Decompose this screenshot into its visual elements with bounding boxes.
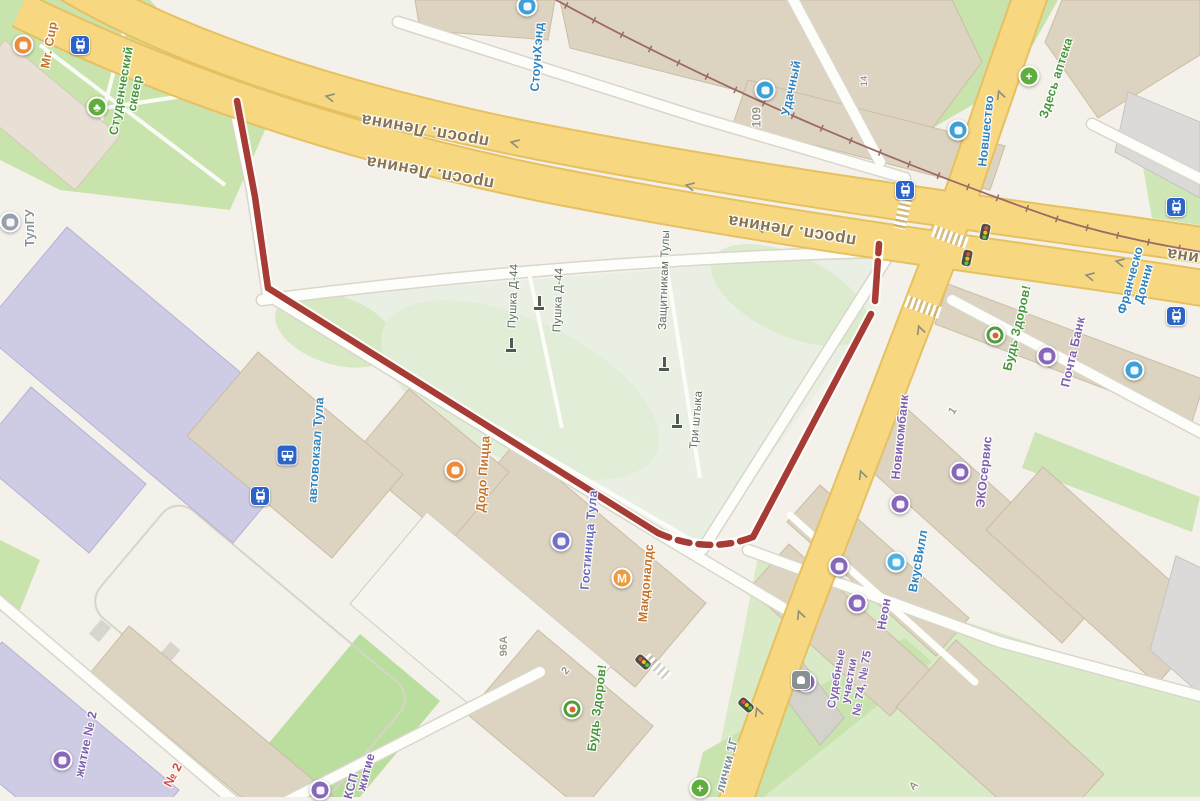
novshestvo-icon[interactable] xyxy=(948,120,969,141)
bud-zdorov-icon[interactable] xyxy=(985,325,1006,346)
transit-stop-icon[interactable] xyxy=(250,486,270,506)
dormitory-icon[interactable] xyxy=(52,750,73,771)
map-viewport[interactable]: ♣ + М + просп. Ленина просп. Ленина прос… xyxy=(0,0,1200,797)
university-icon[interactable] xyxy=(0,212,21,233)
mcdonalds-icon[interactable]: М xyxy=(612,568,633,589)
house-number-109: 109 xyxy=(750,107,763,128)
pharmacy-plus-icon[interactable]: + xyxy=(690,778,711,799)
mr-cup-icon[interactable] xyxy=(13,35,34,56)
bell-icon[interactable] xyxy=(791,670,811,690)
dodo-pizza-icon[interactable] xyxy=(445,460,466,481)
transit-stop-icon[interactable] xyxy=(1166,306,1186,326)
hotel-icon[interactable] xyxy=(551,531,572,552)
ksp-icon[interactable] xyxy=(310,780,331,801)
pharmacy-icon[interactable]: + xyxy=(1019,66,1040,87)
monument-icon[interactable] xyxy=(506,338,516,352)
park-tree-icon[interactable]: ♣ xyxy=(87,97,108,118)
transit-stop-icon[interactable] xyxy=(895,180,915,200)
shop-icon[interactable] xyxy=(829,556,850,577)
label-pushka-d44-2[interactable]: Пушка Д-44 xyxy=(551,268,566,333)
monument-icon[interactable] xyxy=(672,414,682,428)
pochta-bank-icon[interactable] xyxy=(1037,346,1058,367)
monument-icon[interactable] xyxy=(534,296,544,310)
transit-stop-icon[interactable] xyxy=(1166,197,1186,217)
label-tulgu[interactable]: ТулГУ xyxy=(23,209,37,247)
neon-icon[interactable] xyxy=(847,593,868,614)
bud-zdorov-icon-2[interactable] xyxy=(562,699,583,720)
novikombank-icon[interactable] xyxy=(890,494,911,515)
route-segment-end xyxy=(875,244,879,301)
ekoservis-icon[interactable] xyxy=(950,462,971,483)
house-number-14: 14 xyxy=(859,76,869,86)
house-number-96a: 96А xyxy=(498,636,510,657)
bus-station-icon[interactable] xyxy=(277,445,298,466)
monument-icon[interactable] xyxy=(659,357,669,371)
franchesko-donni-icon[interactable] xyxy=(1124,360,1145,381)
transit-stop-icon[interactable] xyxy=(70,35,90,55)
udachny-icon[interactable] xyxy=(755,80,776,101)
vkusvill-icon[interactable] xyxy=(886,552,907,573)
label-pushka-d44-1[interactable]: Пушка Д-44 xyxy=(506,264,521,329)
